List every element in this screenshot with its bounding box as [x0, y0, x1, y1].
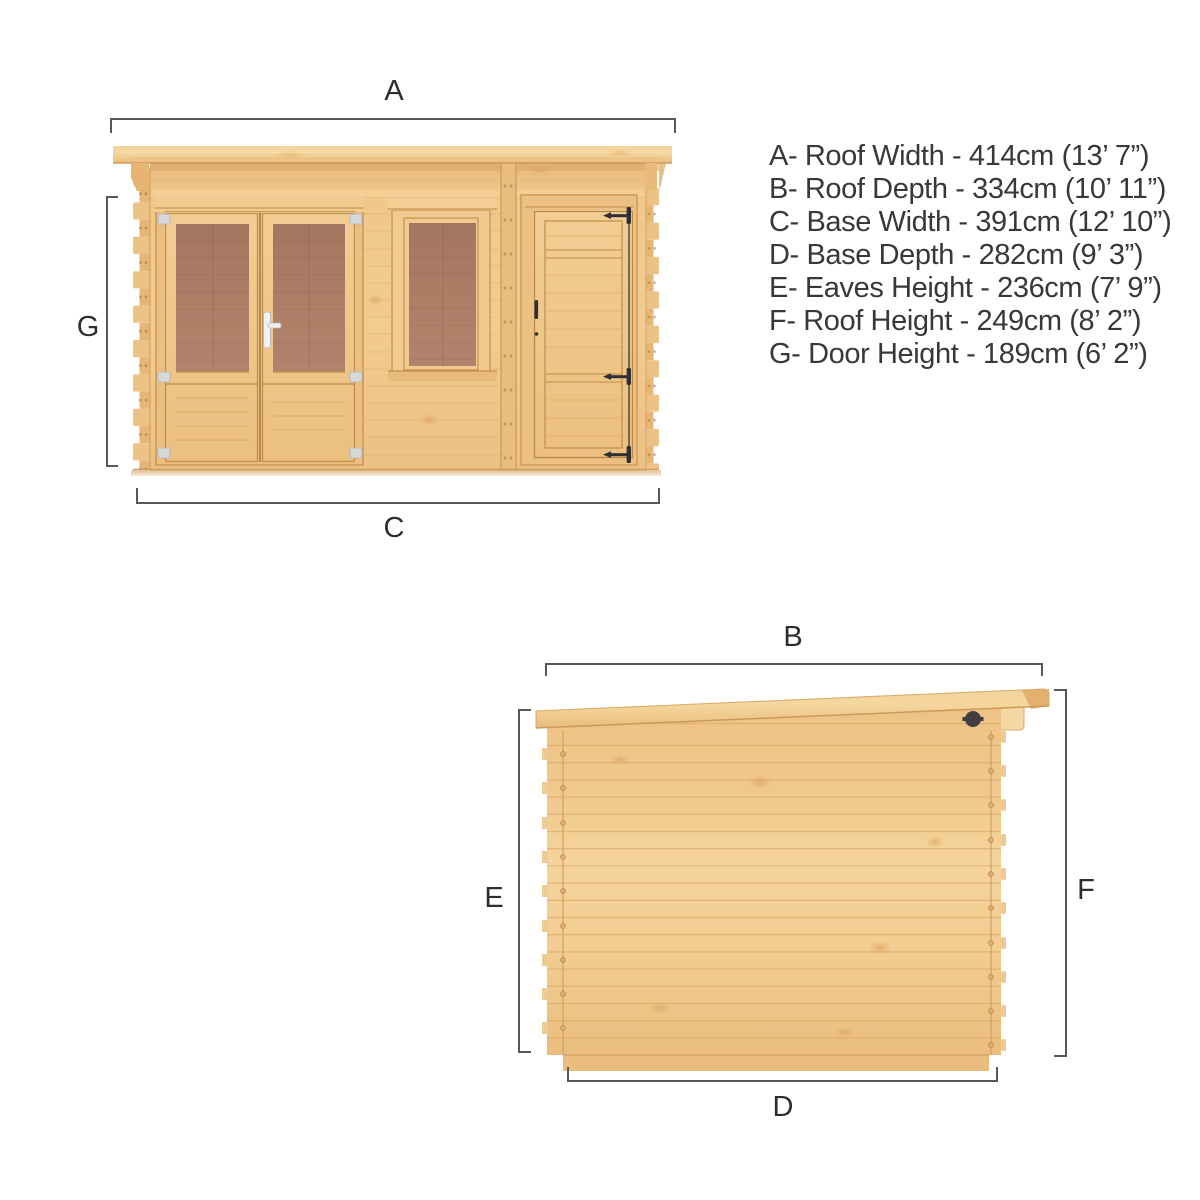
svg-text:F: F	[1077, 874, 1095, 906]
svg-text:A: A	[384, 75, 404, 107]
svg-text:G: G	[77, 311, 100, 343]
svg-text:D: D	[773, 1091, 794, 1123]
svg-text:E: E	[484, 882, 503, 914]
svg-text:B- Roof Depth - 334cm (10’ 11”: B- Roof Depth - 334cm (10’ 11”)	[769, 173, 1166, 205]
svg-text:C- Base Width - 391cm (12’ 10”: C- Base Width - 391cm (12’ 10”)	[769, 206, 1171, 238]
svg-text:F- Roof Height - 249cm (8’ 2”): F- Roof Height - 249cm (8’ 2”)	[769, 305, 1141, 337]
svg-text:G- Door Height - 189cm (6’ 2”): G- Door Height - 189cm (6’ 2”)	[769, 338, 1148, 370]
svg-text:A- Roof Width - 414cm (13’ 7”): A- Roof Width - 414cm (13’ 7”)	[769, 140, 1149, 172]
svg-text:E- Eaves Height - 236cm (7’ 9”: E- Eaves Height - 236cm (7’ 9”)	[769, 272, 1162, 304]
svg-text:C: C	[384, 512, 405, 544]
svg-text:D- Base Depth - 282cm (9’ 3”): D- Base Depth - 282cm (9’ 3”)	[769, 239, 1143, 271]
svg-text:B: B	[783, 621, 802, 653]
